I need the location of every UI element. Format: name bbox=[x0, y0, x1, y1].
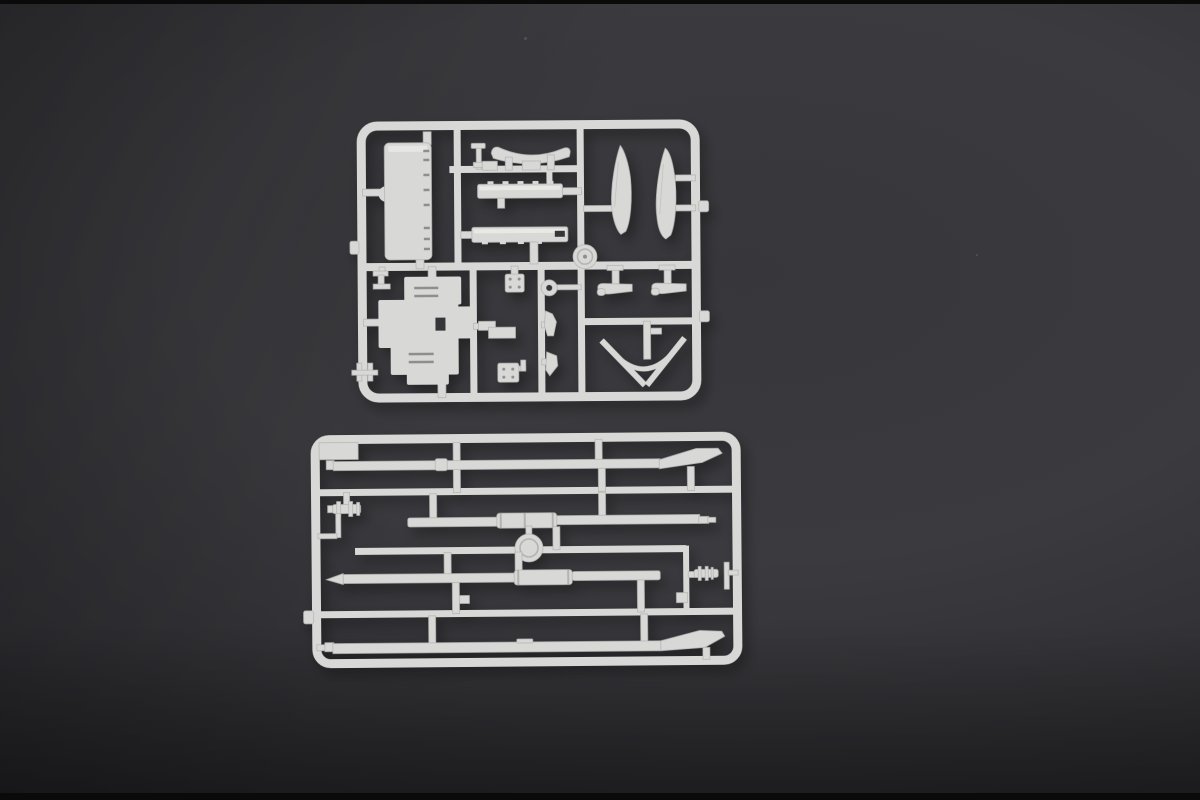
part-yardarm-bottom bbox=[317, 613, 725, 663]
dust-speck bbox=[976, 254, 978, 256]
part-hull-blade-right bbox=[656, 148, 696, 239]
part-capstan-left bbox=[318, 492, 361, 538]
part-mast-upper bbox=[408, 491, 716, 551]
part-v-crane bbox=[601, 321, 684, 386]
gate-tab bbox=[304, 611, 314, 624]
part-yardarm-top bbox=[326, 438, 722, 493]
photo-bottom-edge bbox=[0, 793, 1200, 800]
part-deck-house-lower bbox=[461, 227, 568, 265]
gate-tab bbox=[350, 241, 359, 254]
gate-tab bbox=[699, 311, 709, 322]
part-deck-house-upper bbox=[477, 181, 581, 209]
part-step-bracket bbox=[473, 321, 515, 338]
part-mast-lower bbox=[326, 551, 661, 615]
dust-speck bbox=[524, 37, 527, 40]
part-riveted-plate-lower bbox=[498, 360, 526, 382]
part-hull-blade-left bbox=[583, 145, 631, 234]
part-eyelet-ring bbox=[541, 280, 581, 296]
upper-sprue bbox=[337, 107, 723, 410]
lower-sprue bbox=[295, 421, 749, 677]
part-notched-side-deck bbox=[362, 132, 432, 269]
gate-tab bbox=[699, 201, 709, 212]
part-davit-bracket-left bbox=[597, 265, 632, 295]
part-pulley-disc bbox=[573, 245, 597, 269]
part-davit-bracket-right bbox=[651, 265, 686, 295]
photo-top-edge bbox=[0, 0, 1200, 4]
corner-step bbox=[319, 442, 358, 459]
